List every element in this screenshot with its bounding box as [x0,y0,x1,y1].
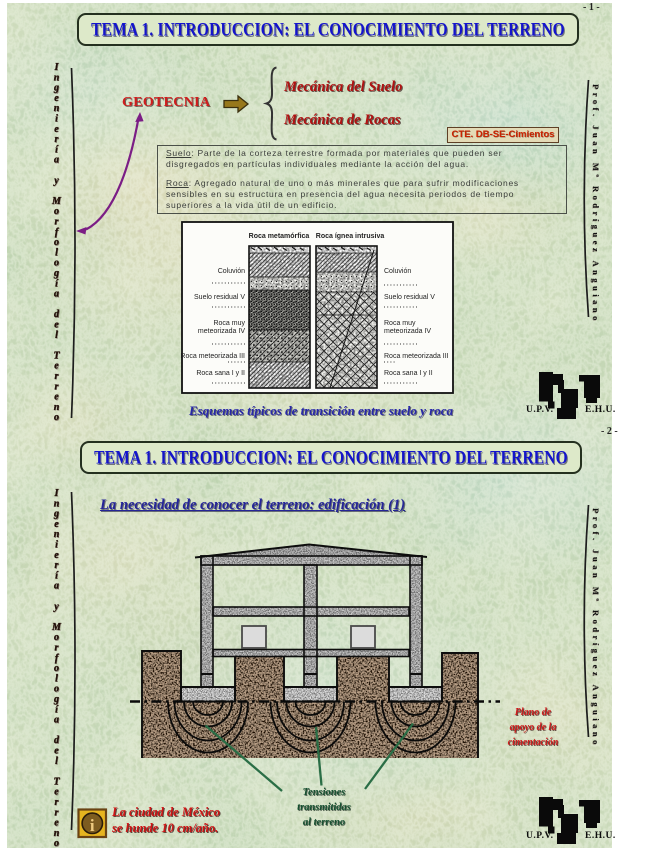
svg-text:Roca ígnea intrusiva: Roca ígnea intrusiva [316,233,385,240]
svg-text:Roca muy: Roca muy [384,320,416,327]
svg-text:Roca meteorizada III: Roca meteorizada III [180,353,245,360]
svg-text:Roca meteorizada III: Roca meteorizada III [384,353,449,360]
svg-text:Roca muy: Roca muy [213,320,245,327]
svg-text:Coluvión: Coluvión [384,268,411,275]
svg-text:Coluvión: Coluvión [218,268,245,275]
svg-text:Suelo residual V: Suelo residual V [194,294,245,301]
svg-text:Roca sana I y II: Roca sana I y II [196,370,245,377]
svg-text:Suelo residual V: Suelo residual V [384,294,435,301]
svg-text:meteorizada IV: meteorizada IV [384,328,431,335]
svg-text:i: i [90,816,95,835]
svg-text:meteorizada IV: meteorizada IV [198,328,245,335]
svg-text:Roca metamórfica: Roca metamórfica [249,233,310,240]
svg-text:Roca sana I y II: Roca sana I y II [384,370,433,377]
